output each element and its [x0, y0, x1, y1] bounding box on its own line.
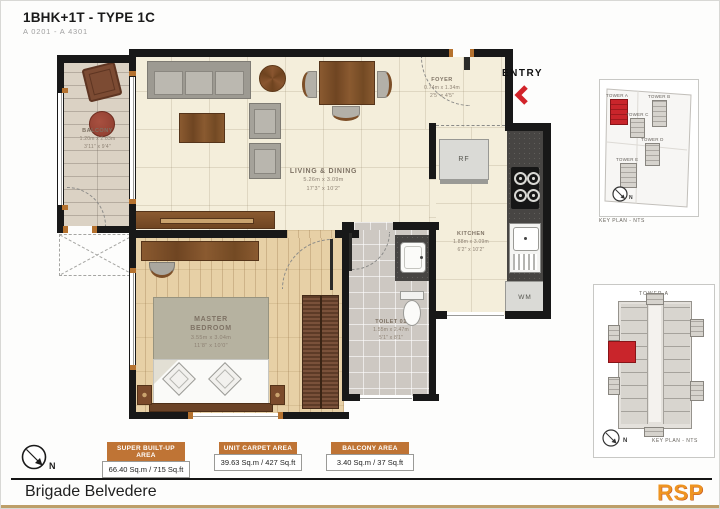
frame-tick: [129, 71, 136, 76]
room-dim-m: 5.26m x 3.09m: [266, 177, 381, 184]
wall: [129, 49, 453, 57]
room-dim-ft: 3'11" x 9'4": [64, 144, 131, 151]
wall: [342, 394, 360, 401]
entry-door-leaf: [464, 57, 470, 70]
rsp-logo: RSP: [657, 480, 704, 506]
footer-rule: [11, 478, 712, 480]
tower-label-c: TOWER C: [626, 112, 649, 117]
tower-wing: [644, 427, 664, 437]
area-label: SUPER BUILT-UP AREA: [107, 442, 185, 461]
wall: [429, 123, 436, 179]
balcony-label: BALCONY 1.20m x 2.83m 3'11" x 9'4": [64, 128, 131, 151]
area-label: UNIT CARPET AREA: [219, 442, 297, 454]
wc-tank: [400, 291, 424, 300]
compass-icon: [21, 444, 48, 471]
sofa-cushion: [154, 71, 183, 95]
fridge-label: RF: [458, 156, 469, 163]
washing-machine-label: WM: [518, 294, 532, 301]
desk: [141, 241, 259, 261]
compass-icon: [612, 186, 628, 202]
area-value: 66.40 Sq.m / 715 Sq.ft: [102, 461, 190, 478]
area-value: 39.63 Sq.m / 427 Sq.ft: [214, 454, 302, 471]
wall: [543, 127, 551, 319]
entry-opening: [453, 49, 470, 57]
room-dim-m: 1.55m x 2.47m: [350, 327, 432, 334]
room-dim-m: 1.88m x 3.09m: [435, 239, 507, 246]
faucet-icon: [420, 256, 423, 259]
frame-tick: [278, 412, 283, 419]
key-plan-site-caption: KEY PLAN - NTS: [599, 218, 645, 224]
entry-chevron-icon: [514, 85, 530, 105]
nightstand: [137, 385, 152, 405]
room-dim-ft: 6'2" x 10'2": [435, 247, 507, 254]
tower-label-e: TOWER E: [616, 157, 638, 162]
dining-chair: [377, 71, 392, 98]
tower-label-a: TOWER A: [606, 93, 628, 98]
kitchen-passage-floor: [429, 179, 436, 222]
room-name: TOILET 01: [350, 319, 432, 326]
hatch-duct-area: [59, 234, 135, 276]
toilet-window: [360, 395, 412, 400]
balcony-window: [58, 93, 63, 205]
bedroom-door-leaf: [330, 239, 333, 290]
north-label: N: [629, 195, 633, 201]
burner-icon: [514, 172, 527, 185]
tower-wing: [646, 293, 664, 305]
key-plan-tower: TOWER A N KEY PLAN - NTS: [593, 284, 715, 458]
area-box-balcony: BALCONY AREA 3.40 Sq.m / 37 Sq.ft: [326, 442, 414, 478]
nightstand: [270, 385, 285, 405]
room-dim-ft: 2'5" x 4'5": [413, 93, 471, 100]
room-dim-m: 1.20m x 2.83m: [64, 136, 131, 143]
wardrobe: [302, 295, 339, 409]
frame-tick: [62, 88, 68, 93]
frame-tick: [129, 199, 136, 204]
highlighted-unit: [608, 341, 636, 363]
tower-floor-plate: [618, 301, 692, 429]
washbasin: [400, 242, 426, 273]
dining-table: [319, 61, 375, 105]
burner-icon: [514, 189, 527, 202]
wall: [505, 55, 513, 129]
dining-chair: [302, 71, 317, 98]
room-dim-ft: 5'1" x 8'1": [350, 335, 432, 342]
tower-label-d: TOWER D: [641, 137, 664, 142]
wall: [429, 230, 436, 401]
living-label: LIVING & DINING 5.26m x 3.09m 17'3" x 10…: [266, 167, 381, 193]
coffee-table: [179, 113, 225, 143]
wall: [57, 55, 136, 63]
north-label: N: [623, 438, 627, 444]
wall: [393, 222, 439, 230]
kitchen-utility-window: [447, 312, 504, 318]
room-dim-ft: 11'8" x 10'0": [176, 343, 246, 350]
room-name: MASTER BEDROOM: [176, 315, 246, 334]
area-value: 3.40 Sq.m / 37 Sq.ft: [326, 454, 414, 471]
floor-plan-page: 1BHK+1T - TYPE 1C A 0201 - A 4301: [0, 0, 720, 509]
wall: [129, 412, 193, 419]
headboard: [149, 403, 273, 412]
drainboard: [513, 254, 537, 270]
area-box-super-built-up: SUPER BUILT-UP AREA 66.40 Sq.m / 715 Sq.…: [102, 442, 190, 478]
wall: [342, 238, 349, 401]
kitchen-overhead-line: [436, 125, 505, 126]
hatch-x-icon: [60, 235, 134, 275]
key-plan-site: TOWER A TOWER B TOWER C TOWER D TOWER E …: [599, 79, 699, 217]
washing-machine: WM: [505, 281, 545, 314]
bedroom-door-threshold: [287, 230, 335, 238]
side-table: [259, 65, 286, 92]
room-name: BALCONY: [64, 128, 131, 135]
toilet-label: TOILET 01 1.55m x 2.47m 5'1" x 8'1": [350, 319, 432, 342]
tower-block-b: [652, 100, 667, 127]
room-name: KITCHEN: [435, 231, 507, 238]
room-dim-m: 3.55m x 3.04m: [176, 335, 246, 342]
key-plan-tower-caption: KEY PLAN - NTS: [652, 438, 698, 444]
compass-icon: [602, 429, 620, 447]
sofa-cushion: [185, 71, 214, 95]
bedroom-window: [193, 413, 278, 418]
frame-tick: [188, 412, 193, 419]
frame-tick: [130, 365, 136, 370]
room-name: LIVING & DINING: [266, 167, 381, 176]
armchair: [249, 103, 281, 139]
room-dim-ft: 17'3" x 10'2": [266, 186, 381, 193]
master-bedroom-label: MASTER BEDROOM 3.55m x 3.04m 11'8" x 10'…: [176, 315, 246, 351]
frame-tick: [130, 268, 136, 273]
frame-tick: [92, 226, 97, 233]
project-name: Brigade Belvedere: [25, 483, 157, 501]
tower-block-d: [645, 143, 660, 166]
tower-wing: [608, 377, 620, 395]
dining-chair: [332, 106, 360, 121]
frame-tick: [63, 226, 68, 233]
wall: [129, 230, 287, 238]
page-title: 1BHK+1T - TYPE 1C: [23, 10, 155, 25]
frame-tick: [62, 205, 68, 210]
toilet-door-threshold: [354, 222, 393, 230]
burner-icon: [527, 172, 540, 185]
sofa-cushion: [215, 71, 244, 95]
tower-wing: [608, 325, 620, 341]
tv-unit: [135, 211, 275, 229]
wall: [505, 311, 551, 319]
tower-block-e: [620, 163, 637, 188]
entry-label: ENTRY: [502, 68, 543, 79]
wall: [335, 230, 359, 238]
bedroom-side-window: [130, 273, 135, 365]
tower-block-c: [630, 118, 645, 138]
wall: [279, 412, 349, 419]
kitchen-sink: [509, 223, 541, 273]
toilet-door-leaf: [349, 233, 352, 271]
room-name: FOYER: [413, 77, 471, 84]
kitchen-label: KITCHEN 1.88m x 3.09m 6'2" x 10'2": [435, 231, 507, 254]
sofa: [147, 61, 251, 99]
frame-tick: [449, 49, 453, 57]
tower-label-b: TOWER B: [648, 94, 670, 99]
area-label: BALCONY AREA: [331, 442, 409, 454]
north-label: N: [49, 461, 56, 471]
footer-gold-strip: [1, 505, 720, 509]
unit-range-subtitle: A 0201 - A 4301: [23, 27, 88, 36]
foyer-label: FOYER 0.74m x 1.34m 2'5" x 4'5": [413, 77, 471, 100]
tower-wing: [690, 319, 704, 337]
room-dim-m: 0.74m x 1.34m: [413, 85, 471, 92]
area-box-carpet: UNIT CARPET AREA 39.63 Sq.m / 427 Sq.ft: [214, 442, 302, 478]
area-summary: SUPER BUILT-UP AREA 66.40 Sq.m / 715 Sq.…: [102, 442, 414, 478]
wall: [342, 222, 354, 230]
balcony-door-opening: [68, 226, 92, 233]
fridge: RF: [439, 139, 489, 180]
burner-icon: [527, 189, 540, 202]
frame-tick: [470, 49, 474, 57]
tower-wing: [690, 381, 704, 401]
